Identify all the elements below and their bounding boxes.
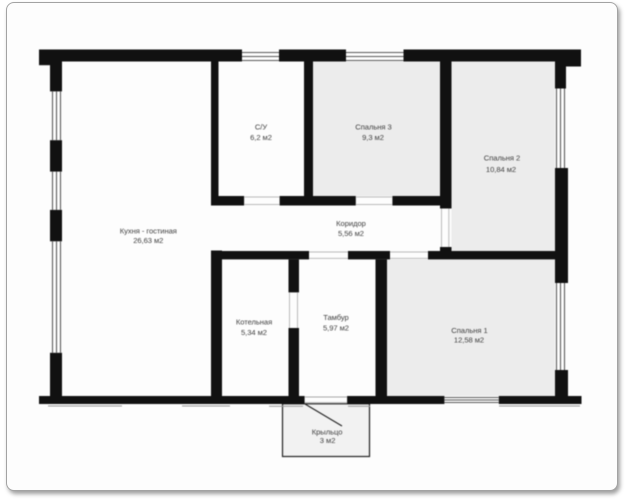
svg-text:9,3 м2: 9,3 м2 <box>362 133 384 142</box>
svg-text:Спальня 1: Спальня 1 <box>451 326 487 335</box>
svg-text:3 м2: 3 м2 <box>320 436 336 445</box>
svg-text:10,84 м2: 10,84 м2 <box>486 165 516 174</box>
svg-text:12,58 м2: 12,58 м2 <box>454 336 484 345</box>
svg-text:Спальня 2: Спальня 2 <box>484 154 520 163</box>
svg-text:С/У: С/У <box>255 123 267 132</box>
svg-text:Кухня - гостиная: Кухня - гостиная <box>120 227 177 236</box>
svg-text:Тамбур: Тамбур <box>323 313 348 322</box>
svg-text:5,56 м2: 5,56 м2 <box>338 229 364 238</box>
svg-text:Котельная: Котельная <box>236 317 272 326</box>
svg-text:Коридор: Коридор <box>336 219 366 228</box>
svg-text:5,34 м2: 5,34 м2 <box>241 328 267 337</box>
svg-text:Спальня 3: Спальня 3 <box>355 123 391 132</box>
svg-text:5,97 м2: 5,97 м2 <box>323 323 349 332</box>
svg-text:6,2 м2: 6,2 м2 <box>250 133 272 142</box>
svg-text:26,63 м2: 26,63 м2 <box>133 236 163 245</box>
